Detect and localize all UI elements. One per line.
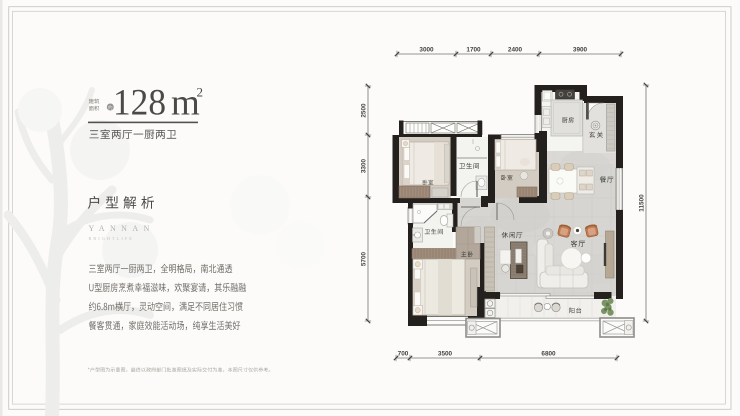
svg-text:YANNAN: YANNAN xyxy=(89,224,155,233)
svg-text:700: 700 xyxy=(398,350,409,357)
svg-text:BRIGHTLIFE: BRIGHTLIFE xyxy=(89,236,134,241)
svg-text:3900: 3900 xyxy=(573,46,588,53)
svg-text:1700: 1700 xyxy=(466,46,481,53)
svg-text:2400: 2400 xyxy=(508,46,523,53)
svg-text:2: 2 xyxy=(197,85,204,100)
svg-text:6800: 6800 xyxy=(541,350,556,357)
svg-text:3300: 3300 xyxy=(360,158,367,173)
svg-text:3500: 3500 xyxy=(438,350,453,357)
svg-text:5700: 5700 xyxy=(360,251,367,266)
svg-text:128: 128 xyxy=(113,83,166,124)
svg-text:3000: 3000 xyxy=(419,46,434,53)
svg-text:2500: 2500 xyxy=(360,103,367,118)
svg-text:11500: 11500 xyxy=(638,194,645,212)
